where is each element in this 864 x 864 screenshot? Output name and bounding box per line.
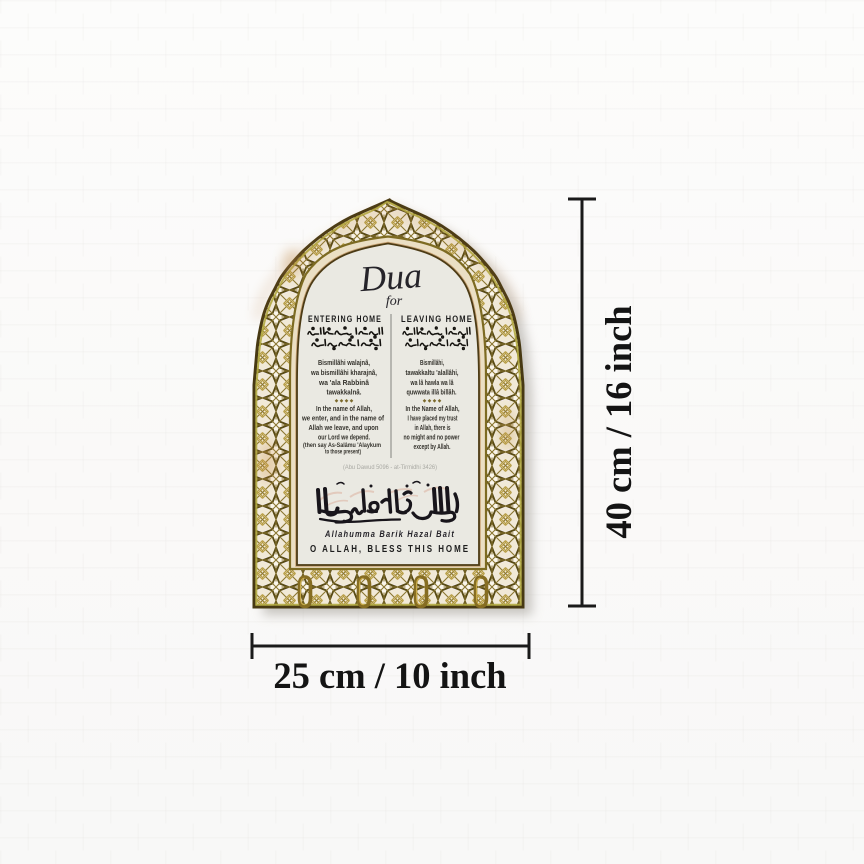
svg-text:wa lâ hawla wa lâ: wa lâ hawla wa lâ (410, 378, 454, 387)
svg-text:to those present): to those present) (325, 450, 361, 456)
svg-text:I have placed my trust: I have placed my trust (408, 414, 458, 423)
svg-text:tawakkaltu 'alallâhi,: tawakkaltu 'alallâhi, (406, 368, 459, 377)
svg-text:In the name of Allah,: In the name of Allah, (316, 404, 372, 413)
svg-text:wa 'ala Rabbinâ: wa 'ala Rabbinâ (318, 378, 370, 387)
svg-text:Allah we leave, and upon: Allah we leave, and upon (309, 423, 379, 432)
svg-text:O ALLAH, BLESS THIS HOME: O ALLAH, BLESS THIS HOME (310, 544, 470, 555)
svg-text:no might and no power: no might and no power (404, 433, 460, 442)
svg-text:Bismillâhi,: Bismillâhi, (420, 358, 444, 367)
svg-text:tawakkalnâ.: tawakkalnâ. (327, 388, 362, 397)
svg-text:ENTERING HOME: ENTERING HOME (308, 314, 382, 324)
svg-text:(then say As-Salâmu 'Alaykum: (then say As-Salâmu 'Alaykum (303, 443, 381, 449)
svg-text:(Abu Dawud 5096 - at-Tirmidh: (Abu Dawud 5096 - at-Tirmidhi 3426) (343, 464, 437, 471)
svg-text:Bismillâhi walajnâ,: Bismillâhi walajnâ, (318, 358, 370, 367)
svg-text:our Lord we depend.: our Lord we depend. (318, 433, 370, 442)
svg-text:we enter, and in the name of: we enter, and in the name of (301, 414, 384, 423)
svg-text:wa bismillâhi kharajnâ,: wa bismillâhi kharajnâ, (310, 368, 377, 377)
svg-text:quwwata illâ billâh.: quwwata illâ billâh. (407, 388, 457, 397)
svg-text:Allahumma Barik Hazal Bait: Allahumma Barik Hazal Bait (324, 529, 455, 540)
svg-text:except by Allah.: except by Allah. (414, 442, 451, 451)
svg-text:LEAVING HOME: LEAVING HOME (401, 314, 473, 324)
svg-text:in Allah, there is: in Allah, there is (415, 423, 451, 432)
svg-text:for: for (386, 294, 403, 309)
svg-text:In the Name of Allah,: In the Name of Allah, (406, 404, 460, 413)
svg-text:25 cm / 10 inch: 25 cm / 10 inch (273, 655, 506, 696)
svg-text:Dua: Dua (358, 255, 424, 299)
svg-text:40 cm / 16 inch: 40 cm / 16 inch (598, 305, 639, 538)
